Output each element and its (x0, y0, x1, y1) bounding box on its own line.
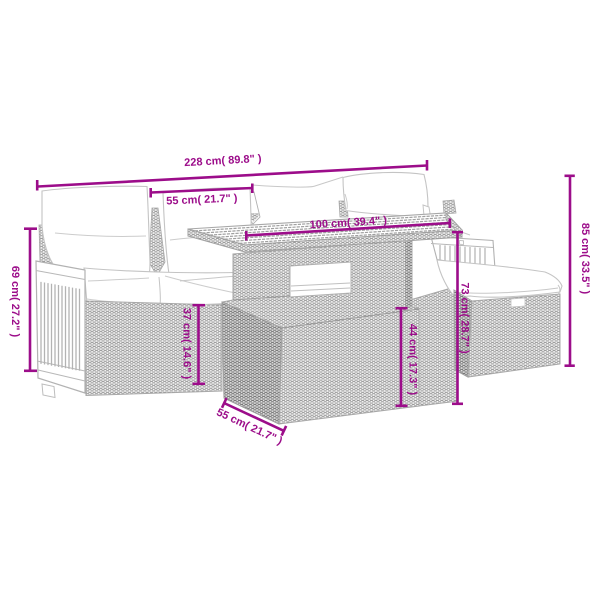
svg-text:85 cm( 33.5" ): 85 cm( 33.5" ) (579, 223, 591, 295)
svg-text:44 cm( 17.3" ): 44 cm( 17.3" ) (407, 324, 419, 396)
svg-text:73 cm( 28.7" ): 73 cm( 28.7" ) (459, 282, 471, 354)
svg-text:69 cm( 27.2" ): 69 cm( 27.2" ) (9, 266, 21, 338)
svg-text:37 cm( 14.6" ): 37 cm( 14.6" ) (181, 308, 193, 380)
